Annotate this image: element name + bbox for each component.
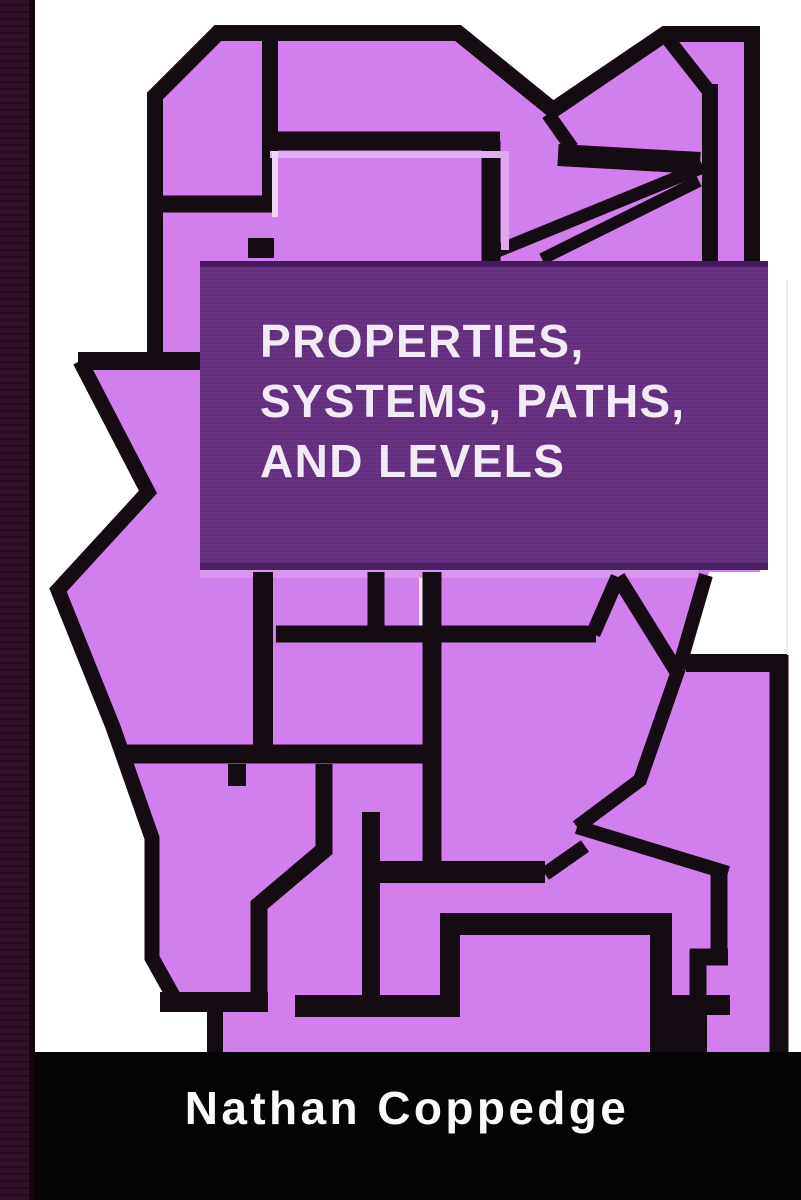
svg-text:SYSTEMS, PATHS,: SYSTEMS, PATHS, bbox=[260, 375, 685, 427]
svg-text:Nathan Coppedge: Nathan Coppedge bbox=[185, 1082, 630, 1134]
svg-text:PROPERTIES,: PROPERTIES, bbox=[260, 315, 585, 367]
svg-text:AND LEVELS: AND LEVELS bbox=[260, 435, 565, 487]
